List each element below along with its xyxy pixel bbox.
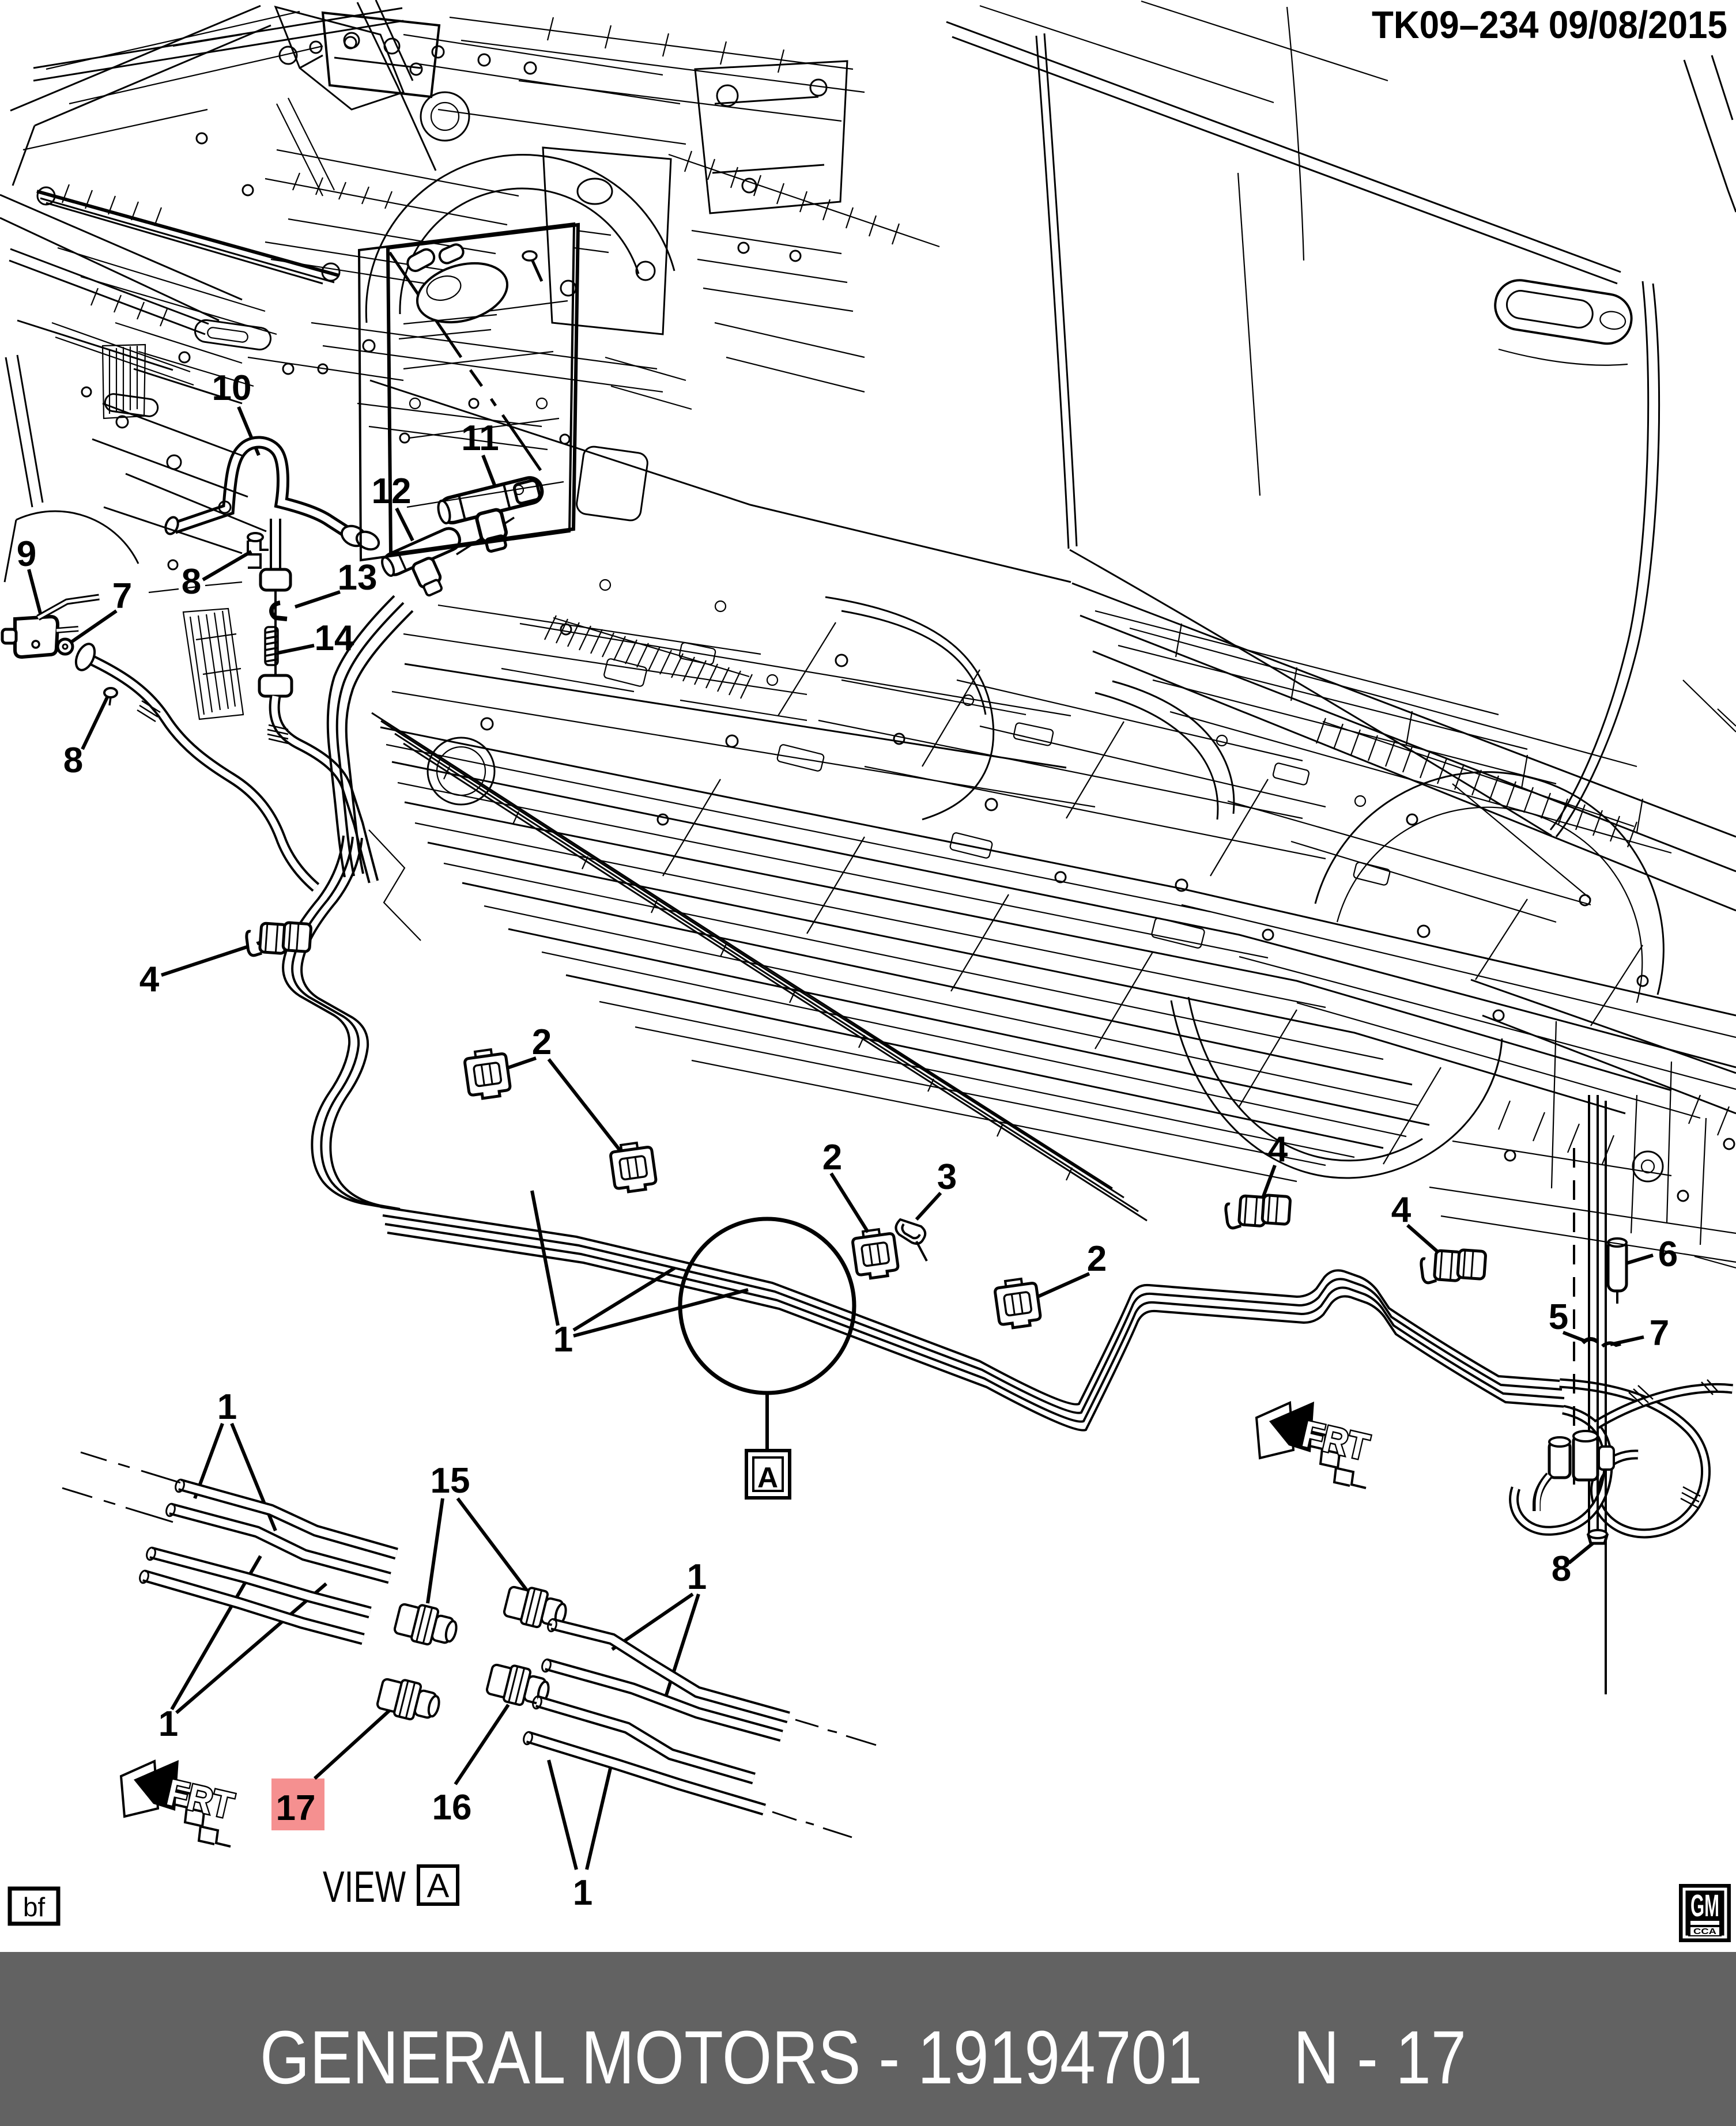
svg-text:1: 1 — [573, 1873, 592, 1913]
svg-text:GM: GM — [1690, 1889, 1719, 1923]
svg-text:1: 1 — [217, 1387, 237, 1427]
svg-text:2: 2 — [532, 1022, 552, 1062]
svg-text:1: 1 — [687, 1557, 707, 1597]
svg-text:8: 8 — [1552, 1549, 1571, 1589]
svg-text:7: 7 — [1650, 1313, 1669, 1353]
svg-text:3: 3 — [937, 1157, 957, 1197]
svg-text:A: A — [757, 1462, 778, 1494]
svg-text:15: 15 — [431, 1461, 470, 1501]
svg-text:11: 11 — [461, 418, 499, 458]
svg-text:A: A — [427, 1867, 450, 1905]
svg-text:13: 13 — [338, 558, 378, 598]
svg-text:16: 16 — [432, 1788, 472, 1827]
svg-text:6: 6 — [1658, 1234, 1678, 1274]
svg-text:TK09–234 09/08/2015: TK09–234 09/08/2015 — [1372, 3, 1727, 47]
svg-text:2: 2 — [822, 1138, 842, 1177]
svg-text:N - 17: N - 17 — [1293, 2015, 1466, 2099]
svg-text:2: 2 — [1087, 1239, 1107, 1279]
svg-text:bf: bf — [23, 1892, 46, 1922]
svg-text:GENERAL MOTORS - 19194701: GENERAL MOTORS - 19194701 — [260, 2015, 1202, 2099]
svg-text:5: 5 — [1549, 1297, 1568, 1337]
svg-text:4: 4 — [139, 960, 160, 999]
svg-text:CCA: CCA — [1693, 1927, 1716, 1936]
svg-text:8: 8 — [182, 562, 201, 602]
svg-text:1: 1 — [553, 1320, 573, 1360]
svg-text:VIEW: VIEW — [323, 1863, 406, 1912]
svg-text:9: 9 — [17, 534, 36, 574]
svg-text:8: 8 — [63, 741, 83, 780]
svg-text:14: 14 — [315, 618, 354, 658]
svg-text:10: 10 — [212, 368, 252, 408]
svg-text:17: 17 — [276, 1788, 316, 1828]
svg-text:4: 4 — [1391, 1190, 1412, 1230]
svg-text:1: 1 — [158, 1704, 178, 1744]
